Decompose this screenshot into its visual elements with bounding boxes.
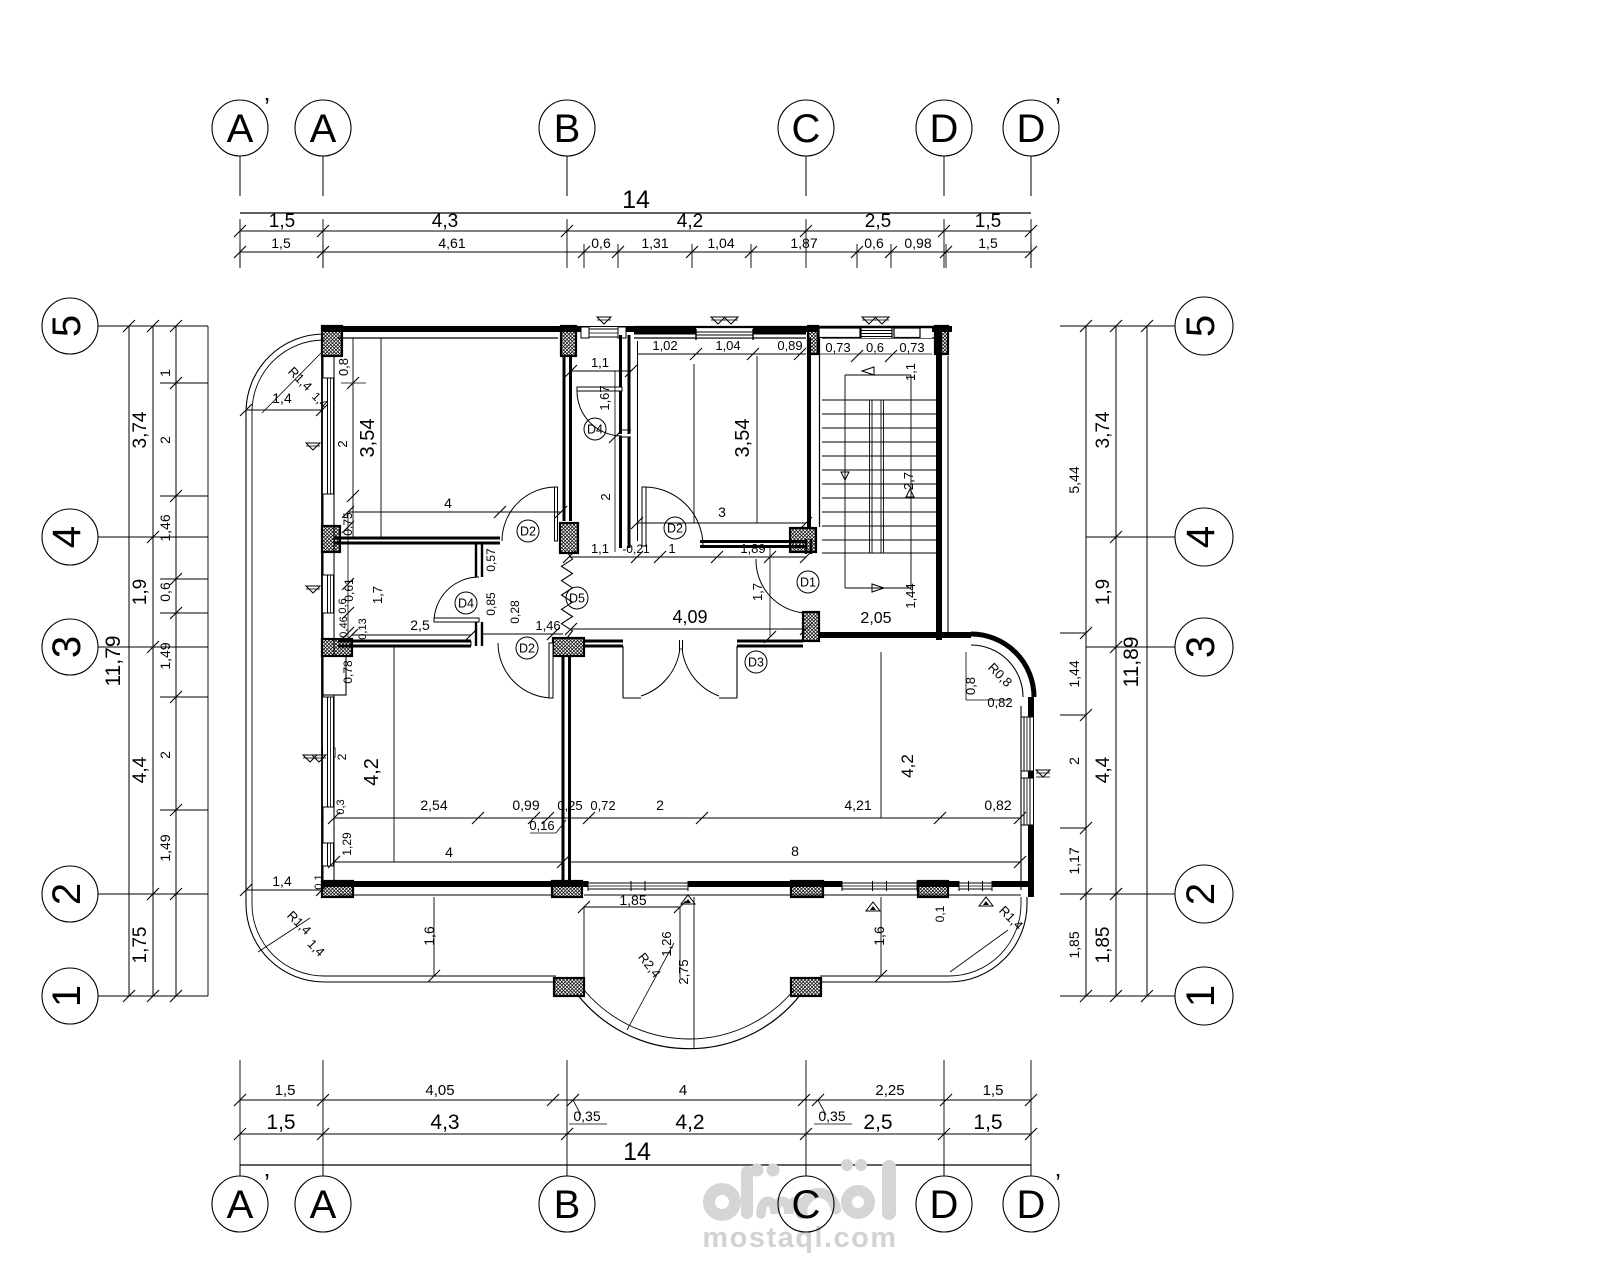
svg-text:3: 3 (1179, 636, 1223, 658)
svg-text:’: ’ (1055, 1168, 1061, 1198)
svg-text:1,46: 1,46 (157, 514, 173, 541)
svg-text:4,2: 4,2 (361, 758, 383, 786)
svg-text:1,5: 1,5 (271, 235, 291, 251)
svg-text:1,85: 1,85 (1093, 927, 1114, 964)
svg-text:5: 5 (45, 315, 89, 337)
svg-text:1,89: 1,89 (740, 541, 765, 556)
svg-text:2,5: 2,5 (865, 211, 891, 232)
svg-text:2: 2 (335, 440, 350, 447)
svg-text:5: 5 (1179, 315, 1223, 337)
svg-text:0,35: 0,35 (818, 1108, 845, 1124)
svg-text:1,5: 1,5 (983, 1082, 1004, 1099)
svg-text:1,85: 1,85 (1066, 931, 1082, 958)
svg-text:C: C (792, 1183, 821, 1227)
svg-text:A: A (310, 107, 337, 151)
svg-text:1,9: 1,9 (1093, 579, 1114, 605)
svg-text:2: 2 (1066, 757, 1082, 765)
svg-text:4,21: 4,21 (844, 797, 871, 813)
svg-text:2: 2 (157, 436, 173, 444)
svg-text:0,6: 0,6 (591, 235, 611, 251)
svg-text:1,49: 1,49 (157, 642, 173, 669)
svg-text:1,9: 1,9 (130, 579, 151, 605)
svg-text:4,61: 4,61 (438, 235, 465, 251)
svg-text:0,13: 0,13 (357, 618, 369, 639)
svg-text:0,82: 0,82 (984, 797, 1011, 813)
svg-text:D2: D2 (519, 642, 535, 656)
svg-text:1,17: 1,17 (1066, 847, 1082, 874)
svg-text:4,2: 4,2 (675, 1111, 704, 1134)
svg-text:14: 14 (623, 1138, 651, 1166)
svg-text:D: D (930, 107, 959, 151)
svg-text:0,89: 0,89 (777, 338, 802, 353)
svg-text:1,49: 1,49 (157, 834, 173, 861)
svg-text:1,44: 1,44 (903, 583, 918, 608)
svg-text:’: ’ (1055, 92, 1061, 122)
svg-text:1: 1 (157, 369, 173, 377)
svg-text:2,5: 2,5 (410, 617, 430, 633)
svg-text:’: ’ (264, 92, 270, 122)
svg-text:0,61: 0,61 (342, 578, 356, 602)
svg-text:0,82: 0,82 (987, 695, 1012, 710)
svg-text:1,1: 1,1 (903, 363, 918, 381)
svg-text:4,4: 4,4 (1093, 756, 1114, 783)
svg-text:2,54: 2,54 (420, 797, 447, 813)
svg-text:1,31: 1,31 (641, 235, 668, 251)
svg-text:8: 8 (791, 843, 799, 859)
svg-text:D4: D4 (458, 597, 474, 611)
svg-text:0,98: 0,98 (904, 235, 931, 251)
svg-text:1,5: 1,5 (269, 211, 295, 232)
svg-text:0,25: 0,25 (557, 798, 582, 813)
svg-text:2: 2 (1179, 883, 1223, 905)
svg-text:0,72: 0,72 (590, 798, 615, 813)
svg-text:1,5: 1,5 (275, 1082, 296, 1099)
svg-text:D: D (1017, 1183, 1046, 1227)
svg-text:2: 2 (656, 797, 664, 813)
svg-text:D2: D2 (520, 525, 536, 539)
svg-text:0,28: 0,28 (508, 600, 522, 624)
svg-text:4,09: 4,09 (672, 607, 707, 627)
svg-text:2,5: 2,5 (863, 1111, 892, 1134)
svg-text:’: ’ (264, 1168, 270, 1198)
svg-text:1,5: 1,5 (973, 1111, 1002, 1134)
svg-text:D1: D1 (800, 576, 816, 590)
svg-text:4: 4 (444, 495, 452, 511)
svg-text:1,5: 1,5 (266, 1111, 295, 1134)
svg-text:D5: D5 (569, 592, 585, 606)
svg-text:1,67: 1,67 (597, 385, 612, 410)
svg-text:0,1: 0,1 (933, 905, 947, 922)
svg-text:1,6: 1,6 (871, 926, 887, 946)
svg-text:14: 14 (622, 186, 650, 214)
svg-text:4: 4 (679, 1082, 687, 1099)
svg-text:2,7: 2,7 (901, 472, 916, 490)
svg-text:0,6: 0,6 (866, 340, 884, 355)
svg-text:1,75: 1,75 (130, 927, 151, 964)
svg-text:0,73: 0,73 (899, 340, 924, 355)
svg-text:5,44: 5,44 (1066, 466, 1082, 493)
svg-text:1,7: 1,7 (370, 586, 385, 604)
svg-text:0,8: 0,8 (336, 358, 351, 376)
svg-text:0,57: 0,57 (484, 548, 498, 572)
svg-text:3: 3 (718, 504, 726, 520)
svg-text:1,5: 1,5 (975, 211, 1001, 232)
svg-text:D4: D4 (587, 423, 603, 437)
svg-text:0,6: 0,6 (157, 582, 173, 602)
svg-text:A: A (310, 1183, 337, 1227)
svg-text:1,6: 1,6 (421, 926, 437, 946)
svg-text:1,5: 1,5 (978, 235, 998, 251)
svg-text:C: C (792, 107, 821, 151)
svg-text:B: B (554, 107, 581, 151)
svg-text:1: 1 (1179, 985, 1223, 1007)
svg-text:11,89: 11,89 (1120, 637, 1143, 688)
svg-text:1,87: 1,87 (790, 235, 817, 251)
svg-text:1: 1 (668, 541, 675, 556)
svg-text:1,85: 1,85 (619, 892, 646, 908)
svg-text:3: 3 (45, 636, 89, 658)
svg-text:0,99: 0,99 (512, 797, 539, 813)
svg-text:1,4: 1,4 (272, 873, 292, 889)
svg-text:0,8: 0,8 (963, 677, 978, 695)
svg-text:1,26: 1,26 (659, 931, 674, 956)
svg-text:D: D (1017, 107, 1046, 151)
svg-text:1,04: 1,04 (715, 338, 740, 353)
svg-text:3,54: 3,54 (357, 419, 379, 458)
svg-text:A: A (227, 107, 254, 151)
svg-text:0,16: 0,16 (529, 818, 554, 833)
svg-text:4,05: 4,05 (425, 1082, 454, 1099)
svg-text:4,2: 4,2 (677, 211, 703, 232)
svg-text:4: 4 (445, 844, 453, 860)
svg-text:0,85: 0,85 (484, 592, 498, 616)
svg-text:D3: D3 (748, 656, 764, 670)
svg-text:1,7: 1,7 (750, 583, 765, 601)
svg-text:2: 2 (335, 753, 349, 760)
svg-text:A: A (227, 1183, 254, 1227)
svg-text:0,6: 0,6 (337, 598, 349, 613)
svg-text:D2: D2 (667, 522, 683, 536)
svg-text:4: 4 (1179, 526, 1223, 548)
svg-text:0,35: 0,35 (573, 1108, 600, 1124)
svg-text:1,1: 1,1 (591, 541, 609, 556)
svg-text:-0,21: -0,21 (622, 542, 650, 556)
svg-text:2,05: 2,05 (860, 610, 891, 627)
svg-text:2: 2 (45, 883, 89, 905)
svg-text:2: 2 (598, 493, 613, 500)
svg-text:1,02: 1,02 (652, 338, 677, 353)
svg-text:1,1: 1,1 (591, 355, 609, 370)
svg-text:3,74: 3,74 (1093, 411, 1114, 448)
svg-text:3,74: 3,74 (130, 411, 151, 448)
svg-text:0,1: 0,1 (313, 874, 325, 889)
svg-text:0,3: 0,3 (335, 799, 347, 814)
svg-text:4,3: 4,3 (430, 1111, 459, 1134)
svg-text:D: D (930, 1183, 959, 1227)
svg-text:0,73: 0,73 (825, 340, 850, 355)
svg-text:1,04: 1,04 (707, 235, 734, 251)
svg-text:2: 2 (157, 751, 173, 759)
svg-text:4: 4 (45, 526, 89, 548)
svg-text:1,44: 1,44 (1066, 660, 1082, 687)
svg-text:2,25: 2,25 (875, 1082, 904, 1099)
svg-text:4,2: 4,2 (898, 754, 917, 778)
svg-text:4,3: 4,3 (432, 211, 458, 232)
svg-text:1,29: 1,29 (340, 832, 354, 856)
svg-text:11,79: 11,79 (102, 636, 125, 687)
svg-text:2,75: 2,75 (676, 959, 691, 984)
svg-text:3,54: 3,54 (732, 419, 754, 458)
svg-text:1: 1 (45, 985, 89, 1007)
svg-text:B: B (554, 1183, 581, 1227)
svg-text:4,4: 4,4 (130, 756, 151, 783)
svg-text:0,78: 0,78 (341, 660, 355, 684)
svg-text:0,6: 0,6 (864, 235, 884, 251)
